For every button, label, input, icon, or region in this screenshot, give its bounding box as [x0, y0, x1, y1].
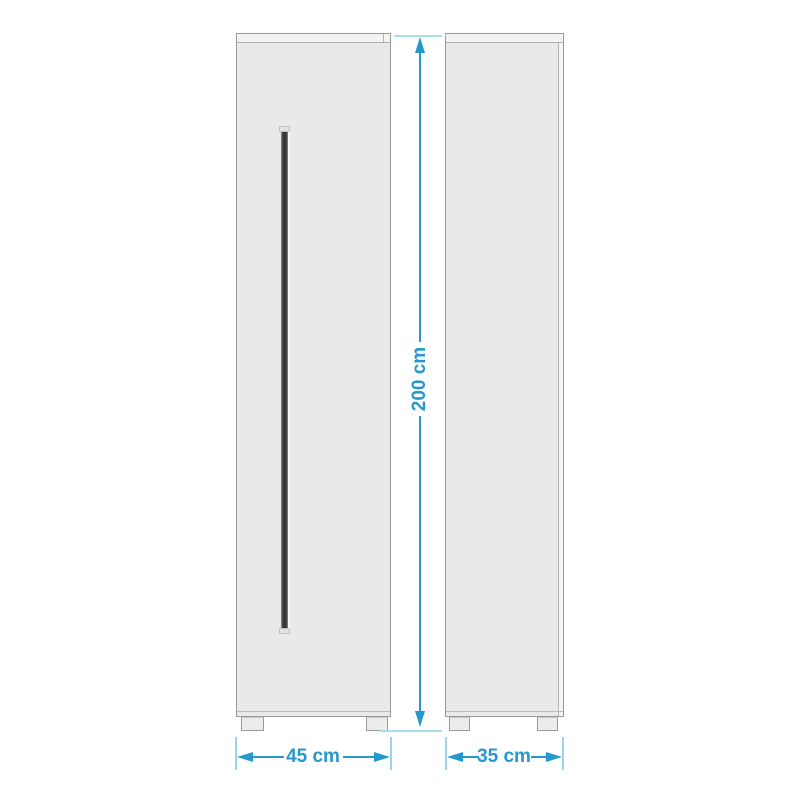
arrow-left-icon	[447, 752, 463, 762]
arrow-down-icon	[415, 711, 425, 727]
side-bottom-panel-edge	[446, 711, 563, 712]
cabinet-top-panel-edge	[237, 34, 390, 43]
height-dimension-label: 200 cm	[410, 339, 430, 419]
dimension-diagram: 200 cm 45 cm 35 cm	[0, 0, 800, 800]
cabinet-bottom-panel-edge	[237, 711, 390, 712]
side-left-foot	[449, 717, 470, 731]
width-dimension-label: 45 cm	[273, 747, 353, 767]
cabinet-side-view	[445, 33, 564, 717]
front-left-foot	[241, 717, 264, 731]
side-top-panel-edge	[446, 34, 563, 43]
door-handle-bar	[281, 132, 288, 628]
side-back-edge-band	[558, 43, 563, 716]
arrow-up-icon	[415, 37, 425, 53]
front-right-foot	[366, 717, 388, 731]
side-right-foot	[537, 717, 558, 731]
depth-dimension-label: 35 cm	[464, 747, 544, 767]
top-panel-corner-divider	[383, 34, 384, 42]
handle-bottom-mount	[279, 628, 290, 634]
dimension-annotations	[0, 0, 800, 800]
arrow-right-icon	[374, 752, 390, 762]
cabinet-front-view	[236, 33, 391, 717]
arrow-left-icon	[237, 752, 253, 762]
arrow-right-icon	[546, 752, 562, 762]
